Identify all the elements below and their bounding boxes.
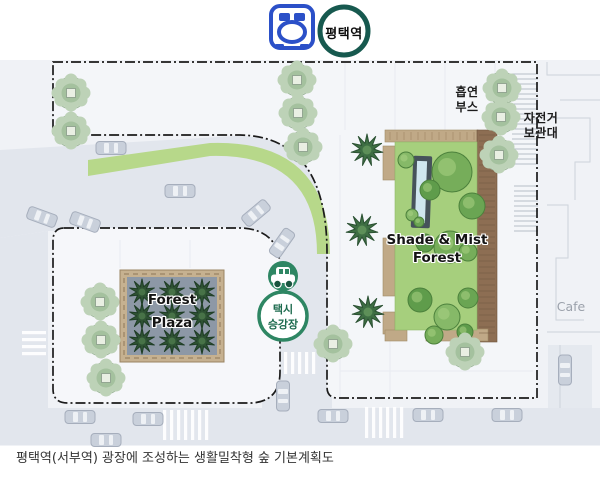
car	[559, 355, 572, 385]
figure-caption: 평택역(서부역) 광장에 조성하는 생활밀착형 숲 기본계획도	[16, 447, 334, 466]
forest-tree	[408, 288, 432, 312]
cafe-label: Cafe	[549, 299, 593, 314]
forest-tree	[420, 180, 440, 200]
car	[96, 142, 126, 155]
station-label: 평택역	[320, 23, 368, 42]
train-icon	[271, 6, 313, 49]
car	[277, 381, 290, 411]
car	[133, 413, 163, 426]
site-plan-figure: 평택역 택시 승강장 흡연 부스 자전거 보관대 Cafe Shade & Mi…	[0, 0, 600, 482]
car	[492, 409, 522, 422]
car	[318, 410, 348, 423]
car	[65, 411, 95, 424]
smoking-booth-label: 흡연 부스	[445, 85, 489, 115]
car	[165, 185, 195, 198]
forest-tree	[425, 326, 443, 344]
car	[91, 434, 121, 447]
forest-tree	[459, 193, 485, 219]
car	[413, 409, 443, 422]
bike-rack-label: 자전거 보관대	[515, 111, 567, 141]
forest-plaza-label: Forest Plaza	[122, 289, 222, 335]
forest-tree	[434, 304, 460, 330]
plan-map	[0, 0, 600, 482]
forest-tree	[414, 217, 424, 227]
forest-tree	[458, 288, 478, 308]
shade-mist-label: Shade & Mist Forest	[367, 231, 507, 267]
forest-tree	[398, 152, 414, 168]
taxi-stand-label: 택시 승강장	[257, 303, 309, 332]
